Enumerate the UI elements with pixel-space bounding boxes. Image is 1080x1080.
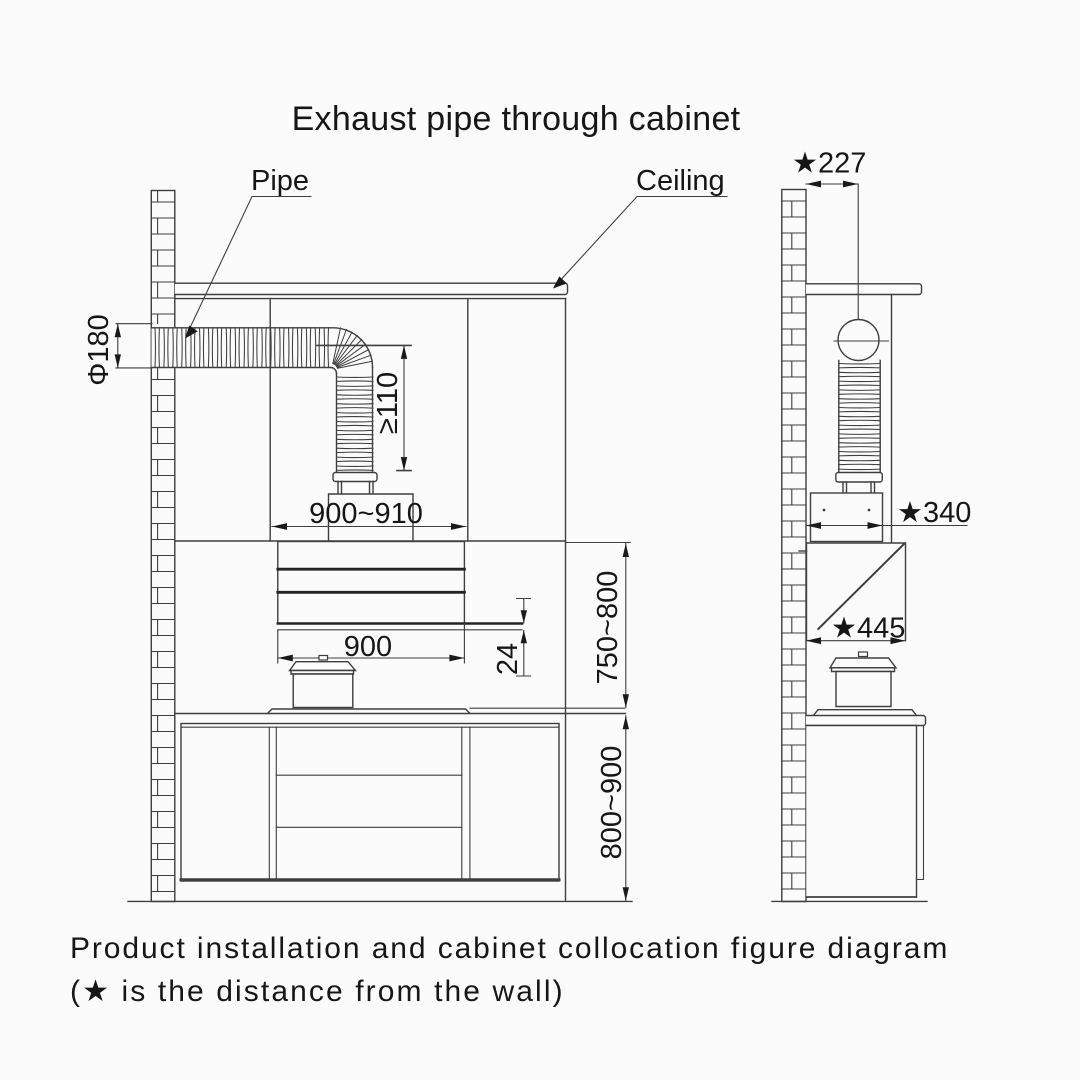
svg-text:Ceiling: Ceiling bbox=[636, 165, 725, 197]
svg-text:24: 24 bbox=[492, 643, 524, 675]
svg-text:Pipe: Pipe bbox=[251, 165, 309, 197]
svg-text:★340: ★340 bbox=[897, 497, 971, 529]
svg-text:★227: ★227 bbox=[792, 148, 866, 180]
svg-text:≥110: ≥110 bbox=[372, 372, 404, 434]
svg-text:(★ is the distance from the wa: (★ is the distance from the wall) bbox=[70, 975, 565, 1008]
svg-text:Product installation and cabin: Product installation and cabinet colloca… bbox=[70, 932, 949, 965]
svg-text:800~900: 800~900 bbox=[596, 746, 628, 860]
svg-text:750~800: 750~800 bbox=[592, 571, 624, 685]
svg-text:Φ180: Φ180 bbox=[83, 314, 115, 386]
svg-text:Exhaust pipe through cabinet: Exhaust pipe through cabinet bbox=[292, 100, 741, 138]
svg-text:900~910: 900~910 bbox=[309, 498, 423, 530]
